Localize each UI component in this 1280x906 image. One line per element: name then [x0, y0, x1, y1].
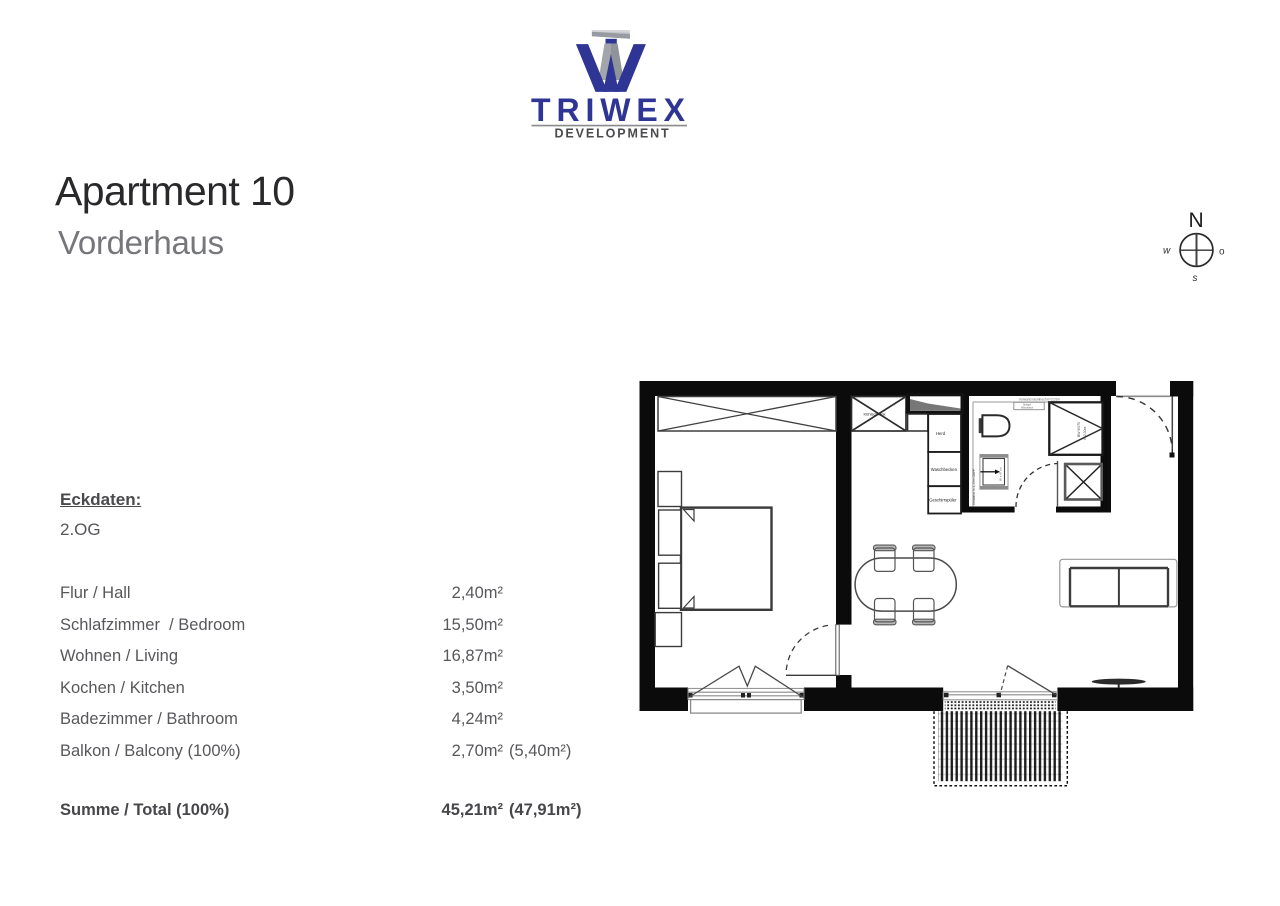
svg-text:Vorwand h=1,13m OKFF: Vorwand h=1,13m OKFF — [972, 469, 976, 505]
svg-text:TRIWEX: TRIWEX — [531, 92, 691, 128]
svg-text:s: s — [1193, 273, 1198, 284]
svg-text:Waschbecken: Waschbecken — [931, 467, 958, 472]
svg-text:h=2,30m: h=2,30m — [1083, 427, 1087, 440]
svg-text:Kühlschrank: Kühlschrank — [864, 412, 886, 417]
svg-text:Herd: Herd — [936, 431, 946, 436]
svg-text:Vorwand raumhoch h=2,01m: Vorwand raumhoch h=2,01m — [1019, 398, 1060, 402]
svg-text:N: N — [1189, 209, 1204, 232]
svg-text:w: w — [1163, 246, 1171, 257]
svg-text:BW 90/75: BW 90/75 — [1077, 422, 1081, 437]
svg-text:Geschirrspüler: Geschirrspüler — [929, 498, 957, 503]
svg-text:o: o — [1219, 247, 1225, 258]
svg-text:Waschtisch: Waschtisch — [1021, 407, 1034, 410]
svg-text:60 x 47 cm: 60 x 47 cm — [999, 467, 1003, 481]
svg-text:DEVELOPMENT: DEVELOPMENT — [555, 127, 671, 141]
